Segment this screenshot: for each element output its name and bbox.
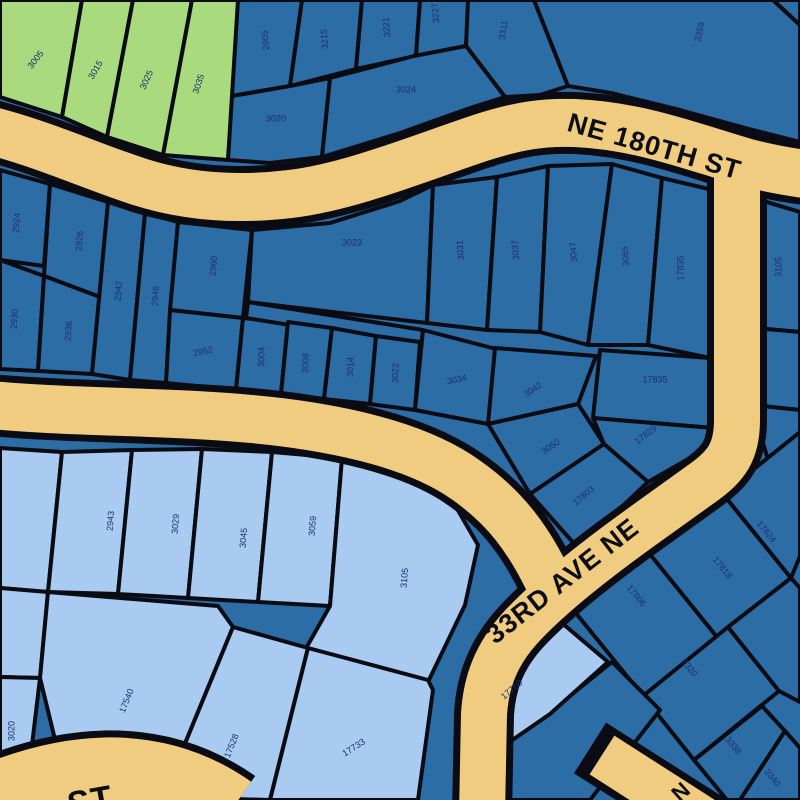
parcel-label-2946: 2946 xyxy=(150,286,161,307)
parcel-label-2905: 2905 xyxy=(260,30,271,51)
parcel-label-3029: 3029 xyxy=(170,514,181,535)
parcel-label-2960: 2960 xyxy=(208,256,219,277)
parcel-label-3020: 3020 xyxy=(266,113,286,123)
parcel-2924[interactable] xyxy=(0,170,50,266)
parcel-label-3047: 3047 xyxy=(568,242,579,263)
parcel-label-2924: 2924 xyxy=(11,213,22,234)
map-canvas: NE 180TH ST33RD AVE NESTN300530153025303… xyxy=(0,0,800,800)
parcel-label-2930: 2930 xyxy=(9,309,20,330)
parcel-map: NE 180TH ST33RD AVE NESTN300530153025303… xyxy=(0,0,800,800)
parcel-label-3022: 3022 xyxy=(390,363,401,383)
parcel-label-3059: 3059 xyxy=(307,516,318,537)
parcel-label-3105: 3105 xyxy=(399,568,410,589)
parcel-label-2943: 2943 xyxy=(105,511,116,532)
parcel-label-3037: 3037 xyxy=(510,240,521,261)
street-sw-street-stub xyxy=(0,774,230,800)
parcel-label-3023: 3023 xyxy=(342,237,362,247)
parcel-label-3065: 3065 xyxy=(620,246,631,267)
parcel-label-2942: 2942 xyxy=(113,281,124,302)
parcel-label-3221: 3221 xyxy=(381,17,392,38)
parcel-label-3227: 3227 xyxy=(430,3,441,24)
parcel-label-3024: 3024 xyxy=(396,84,416,94)
parcel-3059[interactable] xyxy=(258,452,342,606)
parcel-17835[interactable] xyxy=(593,350,713,428)
parcel-label-3105: 3105 xyxy=(773,257,783,277)
parcel-label-3215: 3215 xyxy=(319,29,330,50)
parcel-label-3014: 3014 xyxy=(345,357,356,377)
parcel-label-3008: 3008 xyxy=(300,353,311,373)
parcel-label-3045: 3045 xyxy=(238,528,249,549)
parcel-label-3004: 3004 xyxy=(256,347,267,367)
parcel-label-2926: 2926 xyxy=(74,231,85,252)
parcel-label-17835: 17835 xyxy=(675,255,685,280)
parcel-label-3020: 3020 xyxy=(6,721,16,741)
parcel-label-3031: 3031 xyxy=(455,240,466,261)
parcel-label-2936: 2936 xyxy=(63,321,74,342)
parcel-label-17835: 17835 xyxy=(642,374,667,384)
